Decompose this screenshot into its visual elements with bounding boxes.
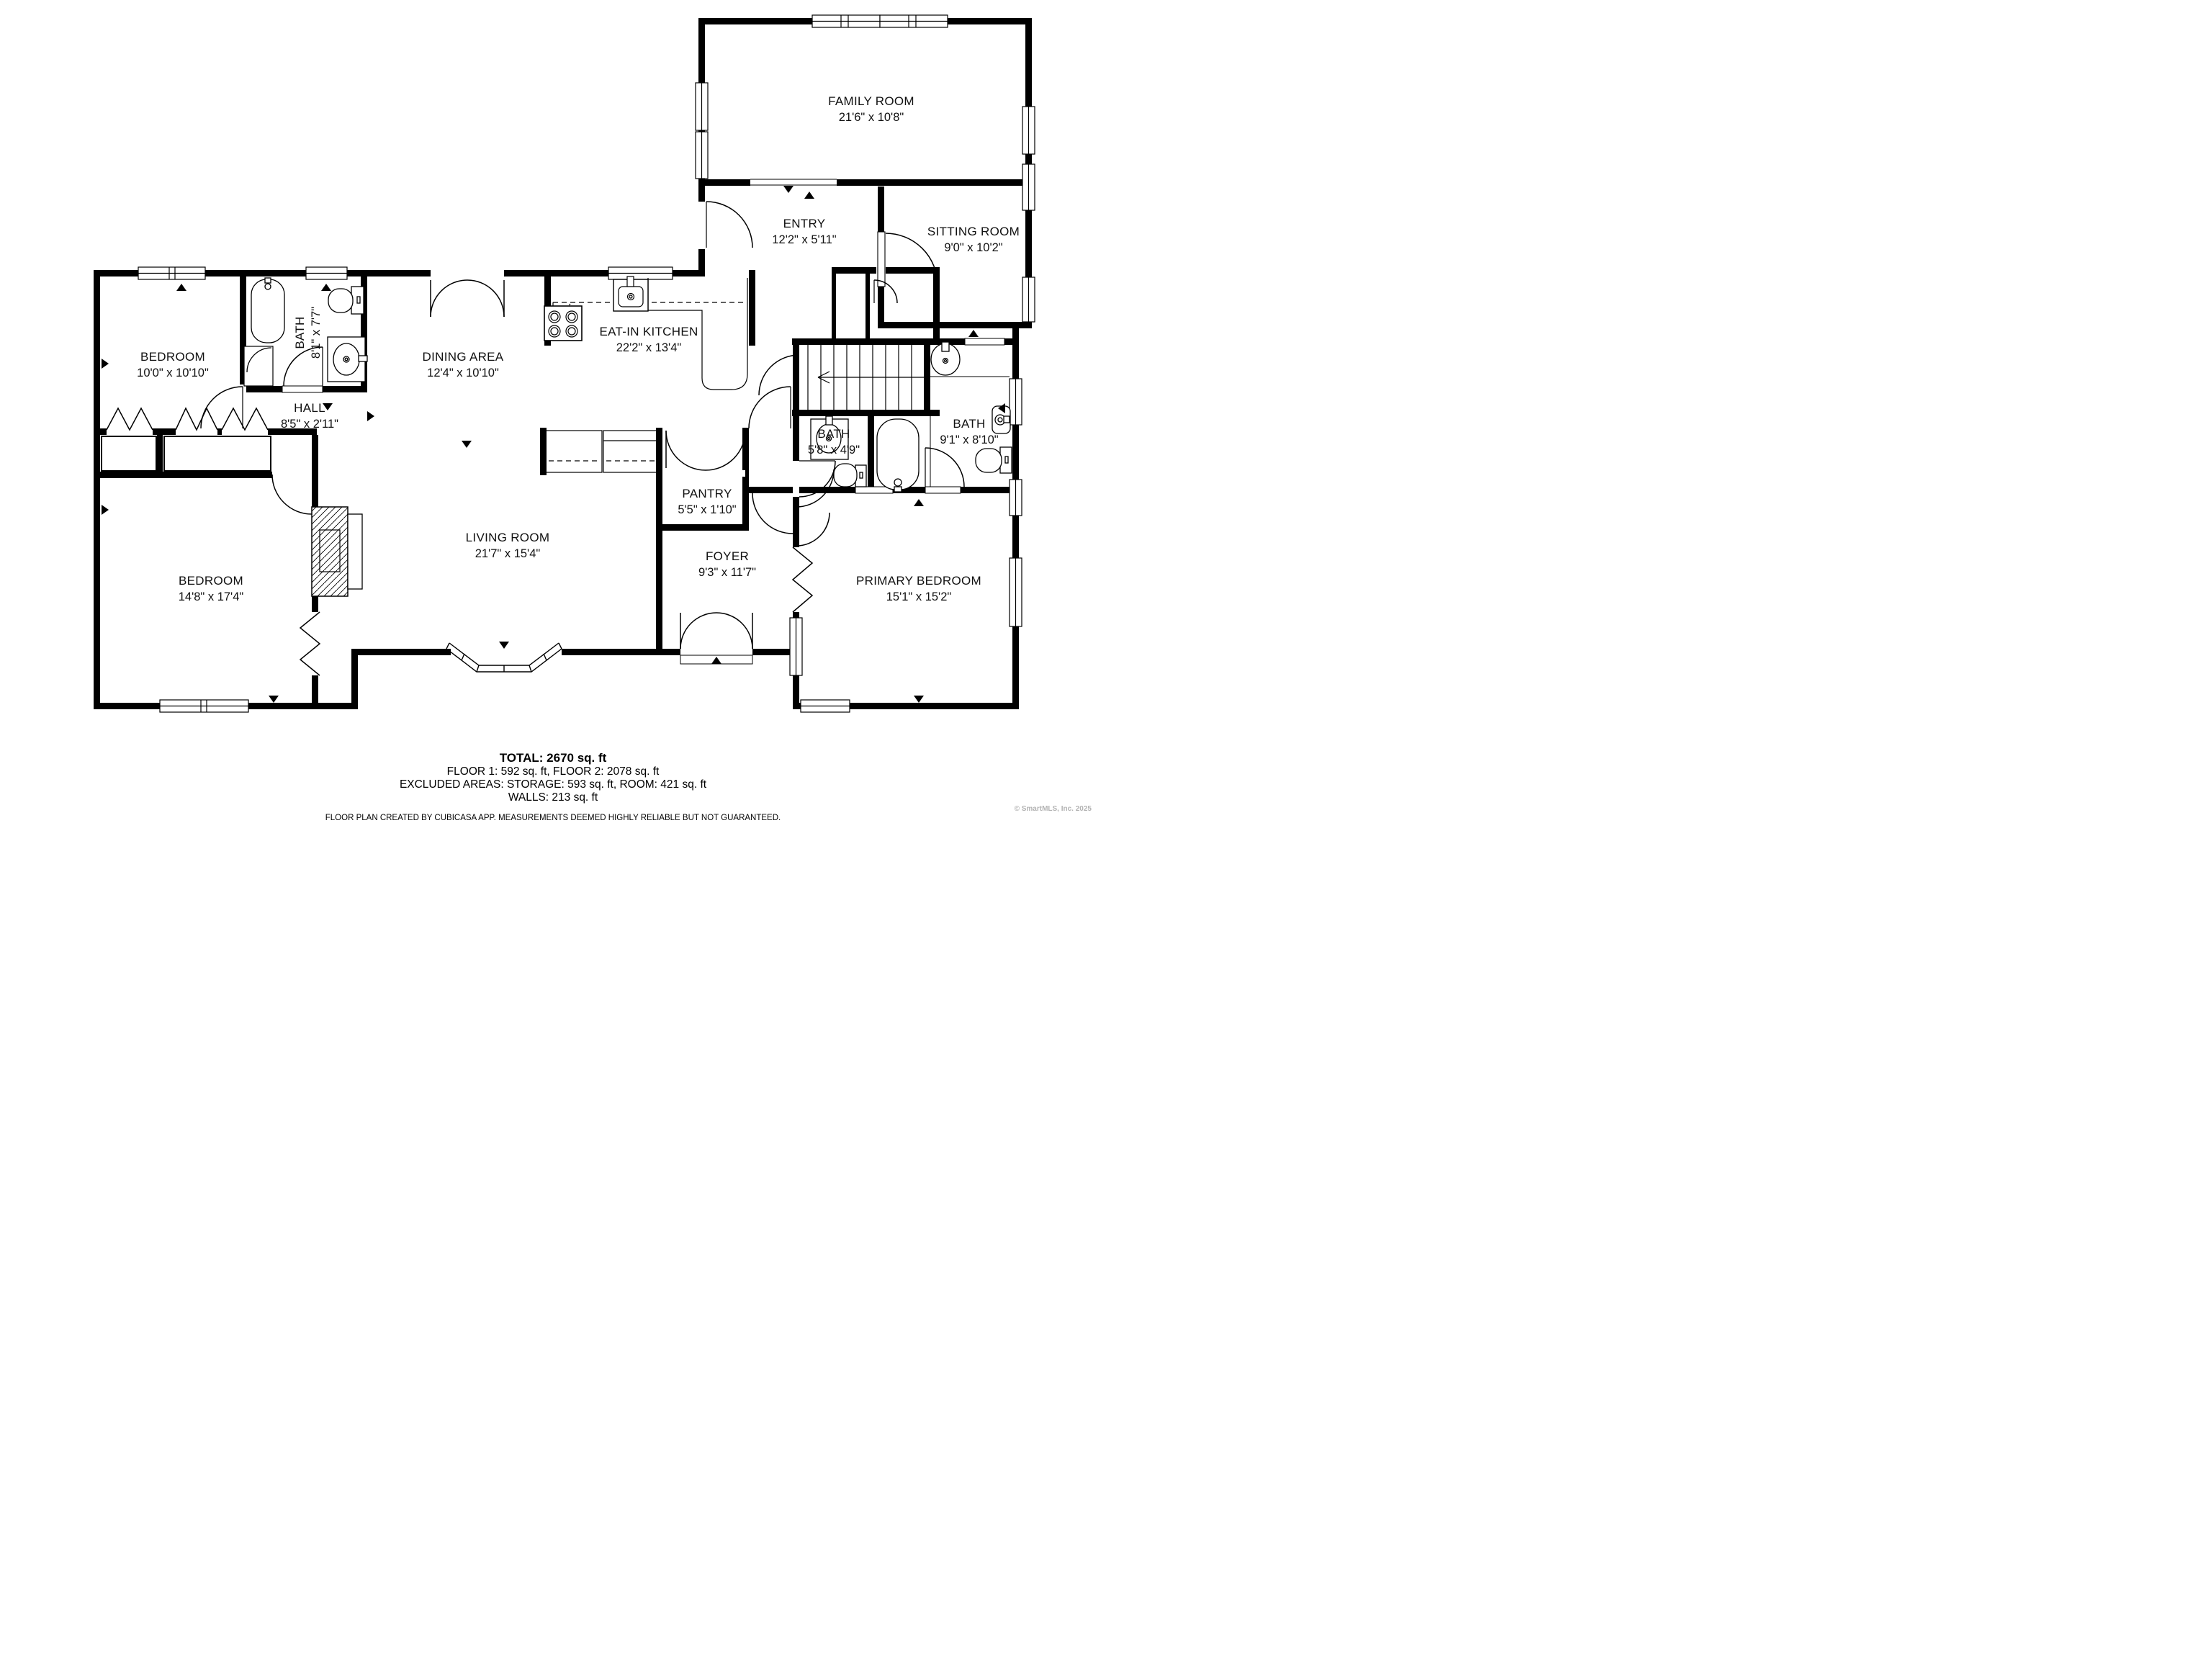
summary-walls: WALLS: 213 sq. ft — [0, 791, 1106, 804]
bath9-toilet — [976, 447, 1012, 473]
folding-doors — [107, 408, 812, 675]
room-label-entry: ENTRY12'2" x 5'11" — [772, 216, 836, 248]
closet-bifold-left — [107, 408, 153, 430]
room-label-living-room: LIVING ROOM21'7" x 15'4" — [466, 530, 550, 562]
summary-excluded: EXCLUDED AREAS: STORAGE: 593 sq. ft, ROO… — [0, 778, 1106, 791]
primary-left-window — [790, 618, 802, 675]
floor-plan-drawing — [0, 0, 1106, 829]
bedroom-top-window — [138, 267, 205, 279]
bath8-sink — [328, 337, 367, 382]
room-label-dining-area: DINING AREA12'4" x 10'10" — [423, 349, 504, 381]
bath9-right-window — [1010, 379, 1022, 425]
tub-faucet — [265, 284, 271, 289]
kitchen-counters — [544, 276, 747, 472]
copyright-text: © SmartMLS, Inc. 2025 — [1015, 805, 1092, 813]
summary-floors: FLOOR 1: 592 sq. ft, FLOOR 2: 2078 sq. f… — [0, 765, 1106, 778]
room-label-bedroom-14: BEDROOM14'8" x 17'4" — [179, 573, 244, 605]
room-label-bath-8: BATH8'1" x 7'7" — [292, 307, 324, 359]
room-label-sitting-room: SITTING ROOM9'0" x 10'2" — [927, 224, 1020, 256]
kitchen-sink — [613, 276, 648, 311]
room-label-bedroom-10: BEDROOM10'0" x 10'10" — [137, 349, 209, 381]
foyer-corridor-door — [752, 493, 793, 534]
disclaimer-text: FLOOR PLAN CREATED BY CUBICASA APP. MEAS… — [0, 814, 1106, 822]
bedroom14-door — [272, 475, 312, 514]
room-label-eat-in-kitchen: EAT-IN KITCHEN22'2" x 13'4" — [599, 324, 698, 356]
closet-bifold-mid — [176, 408, 217, 430]
primary-closet-accordion — [793, 547, 812, 612]
bath9-door — [925, 448, 964, 487]
bedroom10-door — [201, 387, 243, 428]
dining-double-doors — [431, 280, 504, 317]
kitchen-corridor-door — [749, 387, 791, 428]
bath9-tub — [877, 416, 930, 492]
room-label-bath-5: BATH5'8" x 4'9" — [808, 426, 860, 458]
floor-plan-page: FAMILY ROOM21'6" x 10'8" ENTRY12'2" x 5'… — [0, 0, 1106, 829]
room-label-foyer: FOYER9'3" x 11'7" — [698, 549, 756, 580]
room-label-family-room: FAMILY ROOM21'6" x 10'8" — [828, 94, 914, 125]
room-label-hall: HALL8'5" x 2'11" — [281, 400, 338, 432]
bath8-closet — [244, 346, 273, 386]
bath-top-window — [306, 267, 347, 279]
fireplace — [312, 507, 362, 596]
foyer-entry-double-doors — [680, 613, 752, 649]
bath5-toilet — [834, 464, 866, 487]
kitchen-top-window — [608, 267, 673, 279]
room-label-bath-9: BATH9'1" x 8'10" — [940, 416, 998, 448]
bath9-vanity — [930, 342, 1010, 377]
staircase — [808, 345, 929, 410]
entry-front-door — [706, 202, 752, 248]
closet-boxes — [102, 436, 271, 471]
primary-bottom-window — [801, 700, 850, 712]
sitting-room-window — [1022, 277, 1035, 322]
family-room-left-windows — [696, 83, 708, 179]
room-label-primary-bedroom: PRIMARY BEDROOM15'1" x 15'2" — [856, 573, 981, 605]
summary-total: TOTAL: 2670 sq. ft — [0, 751, 1106, 765]
bedroom14-bottom-window — [160, 700, 248, 712]
room-label-pantry: PANTRY5'5" x 1'10" — [678, 486, 736, 518]
kitchen-lower-cabinets — [546, 431, 661, 472]
family-room-top-windows — [812, 15, 948, 27]
stove — [544, 306, 582, 341]
primary-doors — [796, 469, 834, 546]
pantry-double-doors — [666, 431, 745, 470]
toilet — [328, 287, 364, 314]
stairs-direction-arrow — [818, 372, 929, 383]
